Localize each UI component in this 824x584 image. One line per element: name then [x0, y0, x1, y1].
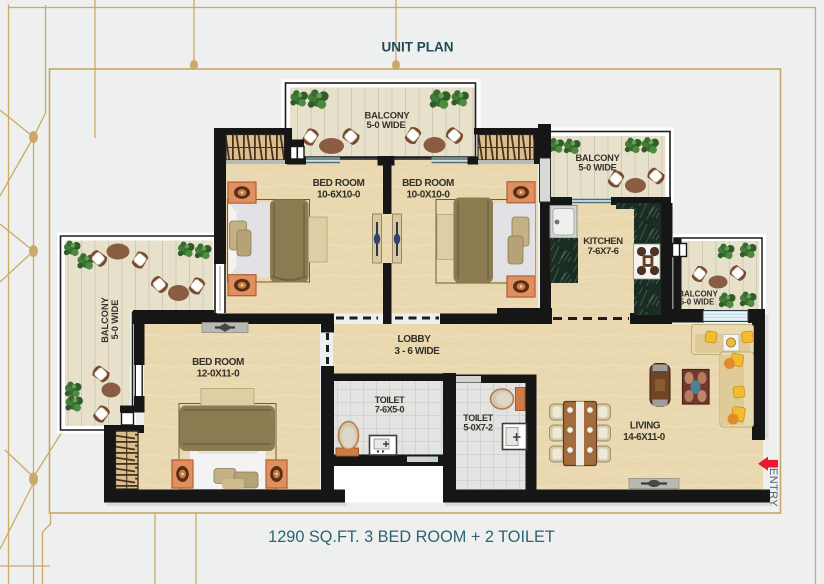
svg-text:LOBBY: LOBBY: [397, 334, 431, 345]
svg-text:1290 SQ.FT. 3 BED ROOM + 2 TOI: 1290 SQ.FT. 3 BED ROOM + 2 TOILET: [268, 528, 555, 546]
svg-text:UNIT PLAN: UNIT PLAN: [382, 40, 454, 55]
svg-text:ENTRY: ENTRY: [767, 468, 779, 507]
svg-text:BED ROOM: BED ROOM: [192, 357, 244, 368]
svg-text:BED ROOM: BED ROOM: [313, 178, 365, 189]
svg-text:TOILET: TOILET: [463, 413, 493, 423]
svg-text:7-6X5-0: 7-6X5-0: [375, 405, 405, 415]
svg-text:BALCONY: BALCONY: [575, 153, 619, 163]
svg-text:5-0 WIDE: 5-0 WIDE: [578, 163, 616, 173]
svg-text:5-0 WIDE: 5-0 WIDE: [680, 298, 715, 307]
svg-text:5-0 WIDE: 5-0 WIDE: [366, 119, 405, 130]
svg-text:BALCONY: BALCONY: [100, 297, 110, 342]
svg-text:10-6X10-0: 10-6X10-0: [317, 190, 361, 201]
svg-text:7-6X7-6: 7-6X7-6: [588, 246, 619, 257]
svg-text:10-0X10-0: 10-0X10-0: [406, 190, 450, 201]
svg-text:3 - 6 WIDE: 3 - 6 WIDE: [395, 346, 441, 357]
svg-text:12-0X11-0: 12-0X11-0: [197, 369, 240, 380]
svg-text:5-0 WIDE: 5-0 WIDE: [110, 300, 120, 340]
svg-text:BED ROOM: BED ROOM: [402, 178, 454, 189]
svg-text:TOILET: TOILET: [375, 395, 405, 405]
svg-text:LIVING: LIVING: [630, 421, 661, 432]
svg-text:14-6X11-0: 14-6X11-0: [623, 432, 666, 443]
svg-text:5-0X7-2: 5-0X7-2: [463, 423, 493, 433]
